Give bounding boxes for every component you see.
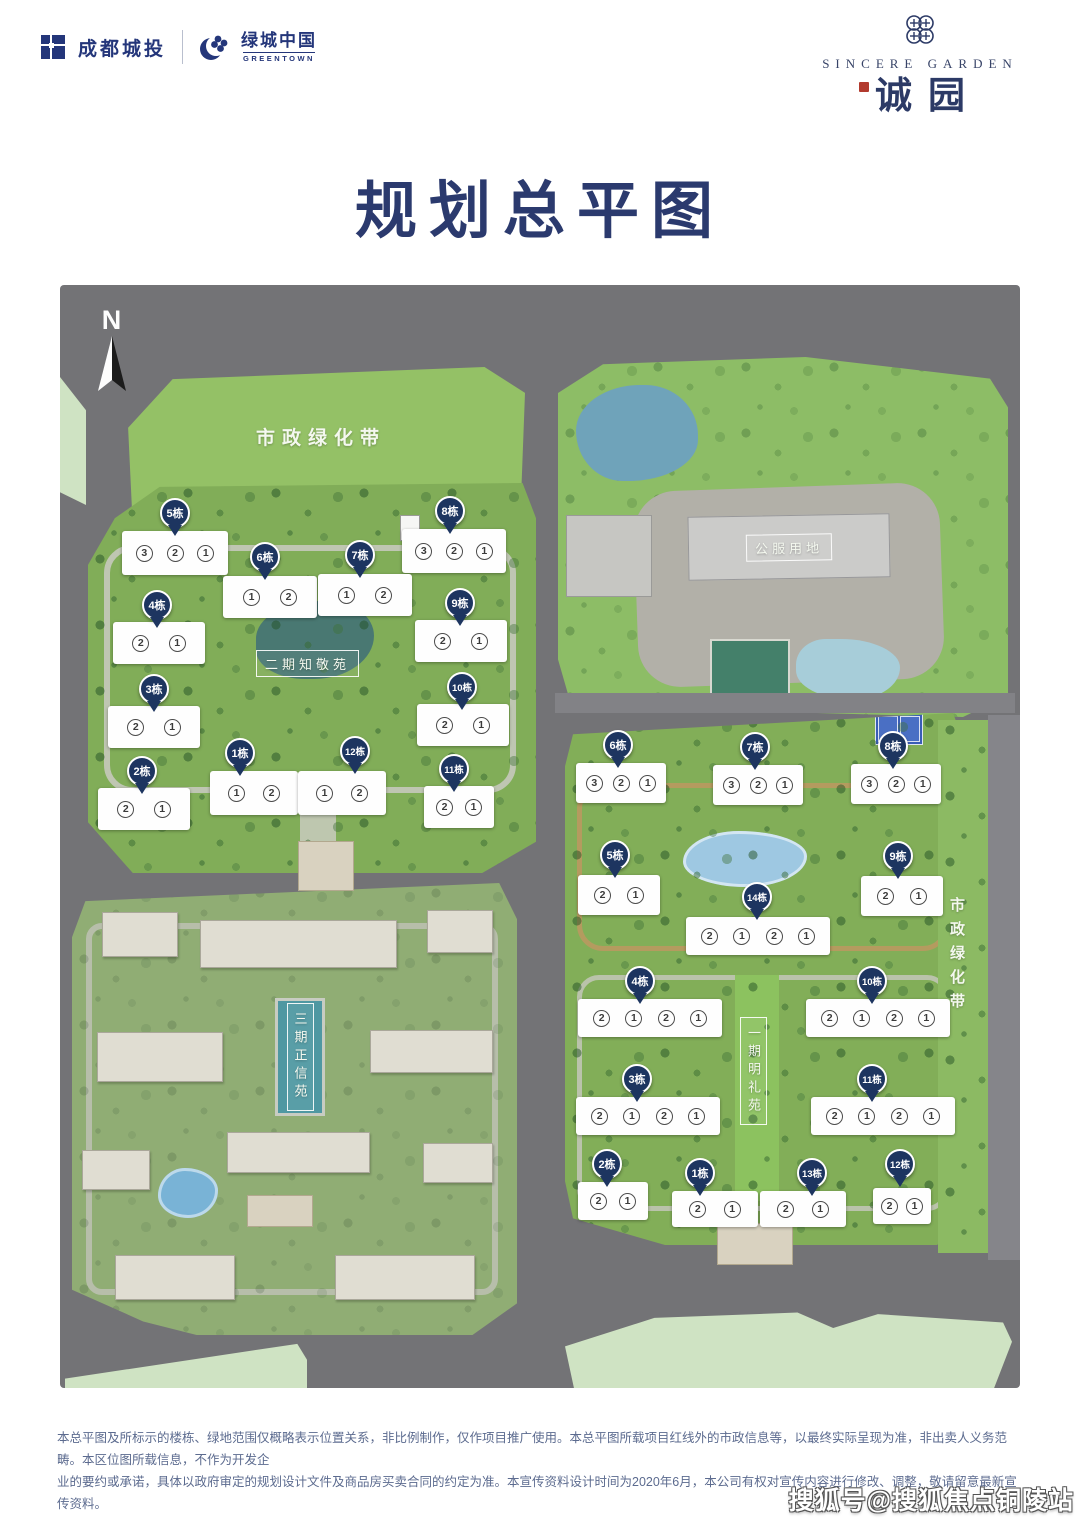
unit-circle: 2 bbox=[766, 928, 783, 945]
unit-circle: 1 bbox=[316, 785, 333, 802]
building-footprint-1栋: 12 bbox=[210, 771, 298, 815]
building-pin-14栋: 14栋 bbox=[742, 882, 772, 912]
unit-circle: 3 bbox=[136, 545, 153, 562]
unit-circle: 2 bbox=[280, 589, 297, 606]
brand-divider bbox=[182, 30, 183, 64]
unit-circle: 1 bbox=[169, 635, 186, 652]
building-footprint-11栋: 2121 bbox=[811, 1097, 955, 1135]
building-pin-11栋: 11栋 bbox=[439, 754, 469, 784]
unit-circle: 1 bbox=[228, 785, 245, 802]
watermark: 搜狐号@搜狐焦点铜陵站 bbox=[789, 1481, 1074, 1517]
unit-circle: 2 bbox=[117, 801, 134, 818]
building-pin-4栋: 4栋 bbox=[625, 966, 655, 996]
unit-circle: 1 bbox=[688, 1108, 705, 1125]
chengdu-chengtou-logo-icon bbox=[40, 34, 66, 60]
unit-circle: 1 bbox=[639, 775, 656, 792]
unit-circle: 1 bbox=[243, 589, 260, 606]
unit-circle: 1 bbox=[910, 888, 927, 905]
unit-circle: 2 bbox=[658, 1010, 675, 1027]
unit-circle: 1 bbox=[164, 719, 181, 736]
label-phase1-name: 一期明礼苑 bbox=[740, 1017, 767, 1125]
building-pin-7栋: 7栋 bbox=[740, 732, 770, 762]
unit-circle: 1 bbox=[690, 1010, 707, 1027]
unit-circle: 2 bbox=[613, 775, 630, 792]
unit-circle: 1 bbox=[858, 1108, 875, 1125]
unit-circle: 2 bbox=[777, 1201, 794, 1218]
unit-circle: 3 bbox=[861, 776, 878, 793]
building-pin-9栋: 9栋 bbox=[883, 841, 913, 871]
building-pin-8栋: 8栋 bbox=[435, 496, 465, 526]
building-pin-11栋: 11栋 bbox=[857, 1064, 887, 1094]
unit-circle: 2 bbox=[881, 1198, 898, 1215]
unit-circle: 1 bbox=[197, 545, 214, 562]
unit-circle: 2 bbox=[877, 888, 894, 905]
greentown-logo-icon bbox=[199, 32, 229, 62]
unit-circle: 3 bbox=[723, 777, 740, 794]
page-title: 规划总平图 bbox=[0, 160, 1080, 250]
unit-circle: 1 bbox=[623, 1108, 640, 1125]
unit-circle: 1 bbox=[853, 1010, 870, 1027]
unit-circle: 2 bbox=[375, 587, 392, 604]
brand-right: SINCERE GARDEN 诚园 bbox=[800, 8, 1040, 115]
unit-circle: 2 bbox=[446, 543, 463, 560]
building-pin-10栋: 10栋 bbox=[857, 966, 887, 996]
unit-circle: 2 bbox=[656, 1108, 673, 1125]
unit-circle: 1 bbox=[812, 1201, 829, 1218]
unit-circle: 2 bbox=[436, 799, 453, 816]
unit-circle: 2 bbox=[701, 928, 718, 945]
building-pin-2栋: 2栋 bbox=[127, 756, 157, 786]
north-label: N bbox=[96, 305, 128, 336]
unit-circle: 2 bbox=[434, 633, 451, 650]
unit-circle: 2 bbox=[689, 1201, 706, 1218]
north-arrow: N bbox=[96, 305, 128, 399]
label-green-belt-right: 市政绿化带 bbox=[946, 897, 967, 1017]
unit-circle: 1 bbox=[923, 1108, 940, 1125]
unit-circle: 1 bbox=[776, 777, 793, 794]
brand-left: 成都城投 绿城中国 GREENTOWN bbox=[40, 30, 317, 64]
unit-circle: 2 bbox=[591, 1108, 608, 1125]
building-footprint-1栋: 21 bbox=[672, 1191, 758, 1227]
building-pin-8栋: 8栋 bbox=[878, 731, 908, 761]
unit-circle: 1 bbox=[906, 1198, 923, 1215]
unit-circle: 2 bbox=[826, 1108, 843, 1125]
building-footprint-4栋: 2121 bbox=[578, 999, 722, 1037]
unit-circle: 3 bbox=[586, 775, 603, 792]
unit-circle: 1 bbox=[914, 776, 931, 793]
building-pin-2栋: 2栋 bbox=[592, 1149, 622, 1179]
building-footprint-3栋: 2121 bbox=[576, 1097, 720, 1135]
building-pin-5栋: 5栋 bbox=[600, 840, 630, 870]
building-pin-3栋: 3栋 bbox=[139, 674, 169, 704]
building-pin-13栋: 13栋 bbox=[797, 1158, 827, 1188]
building-pin-4栋: 4栋 bbox=[142, 590, 172, 620]
building-pin-1栋: 1栋 bbox=[685, 1158, 715, 1188]
unit-circle: 2 bbox=[590, 1193, 607, 1210]
unit-circle: 1 bbox=[918, 1010, 935, 1027]
unit-circle: 1 bbox=[798, 928, 815, 945]
building-pin-12栋: 12栋 bbox=[885, 1149, 915, 1179]
unit-circle: 1 bbox=[476, 543, 493, 560]
unit-circle: 2 bbox=[167, 545, 184, 562]
brand-greentown-en: GREENTOWN bbox=[243, 52, 315, 63]
building-pin-3栋: 3栋 bbox=[622, 1064, 652, 1094]
unit-circle: 1 bbox=[465, 799, 482, 816]
unit-circle: 1 bbox=[627, 887, 644, 904]
building-pin-1栋: 1栋 bbox=[225, 738, 255, 768]
unit-circle: 2 bbox=[886, 1010, 903, 1027]
building-footprint-12栋: 12 bbox=[298, 771, 386, 815]
building-pin-6栋: 6栋 bbox=[603, 730, 633, 760]
unit-circle: 1 bbox=[154, 801, 171, 818]
unit-circle: 2 bbox=[132, 635, 149, 652]
brand-sincere-garden-cnrow: 诚园 bbox=[800, 78, 1040, 115]
unit-circle: 2 bbox=[593, 1010, 610, 1027]
compass-needle-icon bbox=[96, 336, 128, 394]
unit-circle: 1 bbox=[473, 717, 490, 734]
label-phase2-name: 二期知敬苑 bbox=[256, 650, 359, 677]
unit-circle: 2 bbox=[263, 785, 280, 802]
unit-circle: 1 bbox=[625, 1010, 642, 1027]
red-seal-icon bbox=[859, 82, 869, 92]
brand-chengdu-chengtou: 成都城投 bbox=[78, 34, 166, 61]
building-pin-5栋: 5栋 bbox=[160, 498, 190, 528]
unit-circle: 2 bbox=[594, 887, 611, 904]
building-pin-6栋: 6栋 bbox=[250, 542, 280, 572]
unit-circle: 1 bbox=[471, 633, 488, 650]
unit-circle: 1 bbox=[619, 1193, 636, 1210]
building-footprint-13栋: 21 bbox=[760, 1191, 846, 1227]
unit-circle: 2 bbox=[127, 719, 144, 736]
building-pin-7栋: 7栋 bbox=[345, 540, 375, 570]
unit-circle: 1 bbox=[724, 1201, 741, 1218]
unit-circle: 1 bbox=[338, 587, 355, 604]
brand-sincere-garden-cn: 诚园 bbox=[875, 78, 981, 115]
page: 成都城投 绿城中国 GREENTOWN bbox=[0, 0, 1080, 1521]
unit-circle: 2 bbox=[351, 785, 368, 802]
brand-greentown-cn: 绿城中国 bbox=[241, 32, 317, 49]
sincere-garden-emblem-icon bbox=[900, 8, 940, 52]
building-pin-10栋: 10栋 bbox=[447, 672, 477, 702]
unit-circle: 2 bbox=[750, 777, 767, 794]
unit-circle: 3 bbox=[415, 543, 432, 560]
disclaimer-line-1: 本总平图及所标示的楼栋、绿地范围仅概略表示位置关系，非比例制作，仅作项目推广使用… bbox=[57, 1428, 1023, 1472]
label-green-belt-top: 市政绿化带 bbox=[256, 423, 386, 450]
unit-circle: 2 bbox=[888, 776, 905, 793]
building-pin-12栋: 12栋 bbox=[340, 736, 370, 766]
unit-circle: 1 bbox=[733, 928, 750, 945]
unit-circle: 2 bbox=[891, 1108, 908, 1125]
unit-circle: 2 bbox=[436, 717, 453, 734]
building-pin-9栋: 9栋 bbox=[445, 588, 475, 618]
buildings-layer: 3215栋3218栋126栋127栋214栋219栋213栋2110栋212栋1… bbox=[60, 285, 1020, 1388]
brand-sincere-garden-en: SINCERE GARDEN bbox=[800, 56, 1040, 72]
greentown-brand-block: 绿城中国 GREENTOWN bbox=[241, 32, 317, 63]
unit-circle: 2 bbox=[821, 1010, 838, 1027]
master-plan-map: 市政绿化带 二期知敬苑 公服用地 bbox=[60, 285, 1020, 1388]
